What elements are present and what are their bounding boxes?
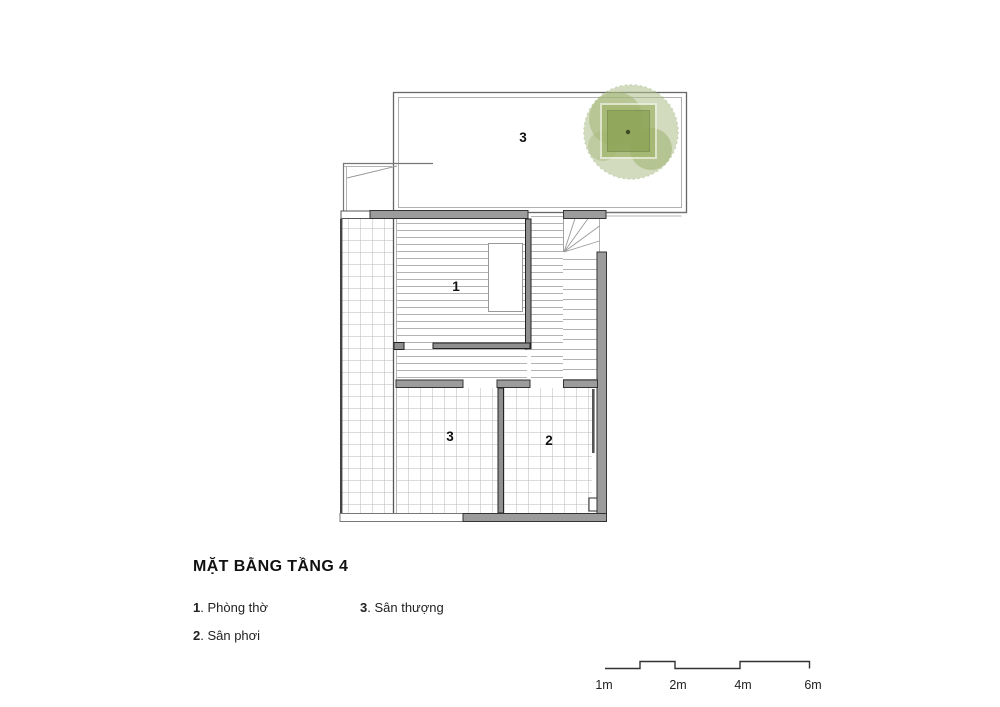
legend-item-san-thuong: 3. Sân thượng bbox=[360, 600, 444, 615]
page-title: MẶT BẰNG TẦNG 4 bbox=[193, 558, 348, 576]
parapet-edge bbox=[340, 514, 463, 522]
legend-text-2: . Sân phơi bbox=[200, 628, 260, 643]
door-pivot bbox=[589, 498, 597, 511]
scale-bar: 1m 2m 4m 6m bbox=[595, 662, 821, 693]
legend-text-1: . Phòng thờ bbox=[200, 600, 268, 615]
left-strip-tiled-floor bbox=[341, 219, 396, 513]
room-divider-wall bbox=[498, 388, 504, 513]
scale-label-4m: 4m bbox=[734, 678, 751, 692]
room1-label: 1 bbox=[452, 279, 460, 294]
scale-label-6m: 6m bbox=[804, 678, 821, 692]
tree-icon bbox=[584, 85, 678, 179]
terrace-label: 3 bbox=[519, 130, 527, 145]
lintel bbox=[341, 211, 370, 219]
floor-plan-page: 3 1 3 2 1m 2m 4m 6m MẶT BẰNG TẦNG 4 1. P… bbox=[0, 0, 1000, 707]
legend-item-phong-tho: 1. Phòng thờ bbox=[193, 600, 268, 615]
altar-cabinet bbox=[489, 244, 523, 312]
scale-label-1m: 1m bbox=[595, 678, 612, 692]
legend-item-san-phoi: 2. Sân phơi bbox=[193, 628, 260, 643]
room3-label: 3 bbox=[446, 429, 454, 444]
window-line bbox=[592, 389, 595, 453]
room2-label: 2 bbox=[545, 433, 553, 448]
scale-label-2m: 2m bbox=[669, 678, 686, 692]
legend-text-3: . Sân thượng bbox=[367, 600, 444, 615]
floor-plan-canvas: 3 1 3 2 1m 2m 4m 6m bbox=[0, 0, 1000, 707]
tree-trunk-dot bbox=[626, 130, 630, 134]
bottom-rooms-tiled-floor bbox=[397, 388, 592, 514]
stairs bbox=[531, 212, 600, 380]
